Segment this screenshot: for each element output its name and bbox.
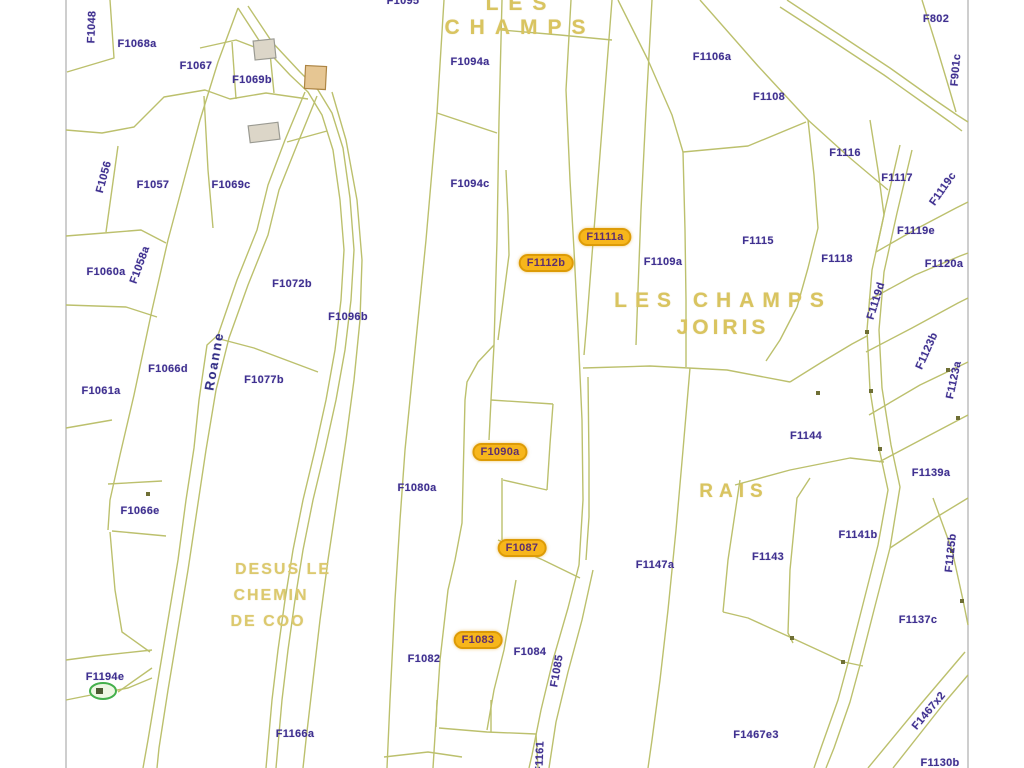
parcel-label-f1116: F1116: [829, 147, 860, 159]
place-name-joiris: JOIRIS: [677, 316, 770, 340]
parcel-label-f1123a: F1123a: [944, 360, 964, 400]
parcel-label-f802: F802: [923, 13, 949, 25]
parcel-label-f1058a: F1058a: [128, 245, 153, 286]
parcel-label-f1056: F1056: [94, 160, 114, 195]
map-labels: F1095LESCHAMPSF1048F1068aF1067F1069bF109…: [0, 0, 1024, 768]
parcel-label-f1069c: F1069c: [211, 179, 250, 191]
parcel-label-f1094a: F1094a: [450, 56, 489, 68]
parcel-label-f1067: F1067: [180, 60, 213, 72]
highlighted-parcel-label-f1090a: F1090a: [472, 443, 527, 461]
highlighted-parcel-label-f1083: F1083: [454, 631, 503, 649]
parcel-label-f1080a: F1080a: [397, 482, 436, 494]
parcel-label-f1123b: F1123b: [914, 331, 941, 372]
parcel-label-f1060a: F1060a: [86, 266, 125, 278]
cadastral-map: F1095LESCHAMPSF1048F1068aF1067F1069bF109…: [0, 0, 1024, 768]
parcel-label-f1109a: F1109a: [644, 256, 683, 268]
parcel-label-f1061a: F1061a: [81, 385, 120, 397]
place-name-chemin: CHEMIN: [233, 587, 308, 605]
parcel-label-f1069b: F1069b: [232, 74, 272, 86]
parcel-label-f1120a: F1120a: [925, 258, 964, 270]
parcel-label-f1096b: F1096b: [328, 311, 368, 323]
parcel-label-f1125b: F1125b: [943, 533, 959, 573]
parcel-label-f1147a: F1147a: [636, 559, 675, 571]
parcel-label-f1048: F1048: [85, 10, 98, 43]
parcel-label-f1118: F1118: [821, 253, 852, 265]
parcel-label-f1115: F1115: [742, 235, 773, 247]
parcel-label-f901c: F901c: [949, 53, 964, 87]
parcel-label-f1467x2: F1467x2: [910, 690, 948, 733]
place-name-rais: RAIS: [699, 481, 768, 503]
parcel-label-f1066e: F1066e: [120, 505, 159, 517]
parcel-label-f1057: F1057: [137, 179, 170, 191]
parcel-label-f1144: F1144: [790, 430, 822, 442]
parcel-label-f1141b: F1141b: [838, 529, 877, 541]
parcel-label-f1068a: F1068a: [117, 38, 156, 50]
parcel-label-f1166a: F1166a: [276, 728, 315, 740]
highlighted-parcel-label-f1111a: F1111a: [578, 228, 631, 246]
highlighted-parcel-label-f1112b: F1112b: [519, 254, 574, 272]
parcel-label-f1467e3: F1467e3: [733, 729, 779, 741]
place-name-de-coo: DE COO: [230, 613, 305, 631]
parcel-label-f1106a: F1106a: [693, 51, 732, 63]
place-name-les-champs: LES CHAMPS: [614, 289, 832, 313]
parcel-label-f1077b: F1077b: [244, 374, 284, 386]
place-name-champs: CHAMPS: [444, 16, 595, 40]
parcel-label-f1119e: F1119e: [897, 225, 935, 237]
parcel-label-f1094c: F1094c: [450, 178, 489, 190]
parcel-label-f1194e: F1194e: [86, 671, 125, 683]
parcel-label-f1143: F1143: [752, 551, 784, 563]
parcel-label-f1117: F1117: [881, 172, 912, 184]
parcel-label-f1066d: F1066d: [148, 363, 188, 375]
parcel-label-f1085: F1085: [548, 654, 565, 688]
parcel-label-f1095: F1095: [387, 0, 420, 7]
parcel-label-f1130b: F1130b: [920, 757, 959, 768]
place-name-les: LES: [486, 0, 557, 16]
parcel-label-f1137c: F1137c: [899, 614, 938, 626]
stream-name-roanne: Roanne: [201, 330, 226, 391]
parcel-label-f1108: F1108: [753, 91, 785, 103]
parcel-label-f1161: F1161: [533, 741, 546, 768]
parcel-label-f1072b: F1072b: [272, 278, 312, 290]
place-name-desus-le: DESUS LE: [235, 561, 331, 579]
parcel-label-f1139a: F1139a: [912, 467, 951, 479]
parcel-label-f1119d: F1119d: [865, 281, 888, 321]
parcel-label-f1082: F1082: [408, 653, 441, 665]
highlighted-parcel-label-f1087: F1087: [498, 539, 547, 557]
parcel-label-f1119c: F1119c: [927, 170, 959, 208]
parcel-label-f1084: F1084: [514, 646, 547, 658]
